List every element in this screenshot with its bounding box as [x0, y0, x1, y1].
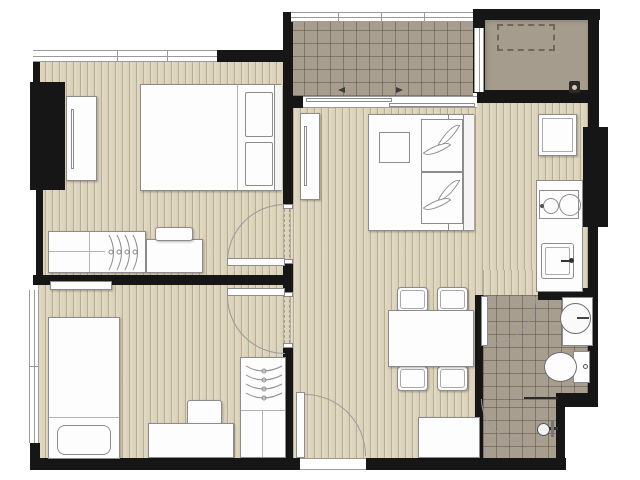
entrance-door-leaf [296, 392, 305, 458]
wall-step-vertical [556, 400, 565, 468]
balcony-floor [291, 20, 473, 96]
tray [155, 227, 193, 241]
dining-chair [397, 287, 428, 312]
double-bed-with-leaf-pillows [368, 114, 474, 231]
wardrobe [66, 96, 97, 181]
pillow [245, 142, 273, 186]
kitchen-sink [541, 243, 574, 279]
floor-drain-icon [569, 81, 580, 93]
dining-table [388, 310, 474, 367]
wardrobe-with-hangers [240, 357, 286, 458]
burner-small [543, 198, 559, 214]
bedroom-bottom-door-leaf [227, 288, 285, 296]
hangers-icon [244, 363, 284, 403]
wall-left-column [30, 82, 65, 190]
pillow [57, 425, 111, 455]
bedroom-left-window [29, 290, 39, 443]
dining-chair [437, 287, 468, 312]
shower-partition [524, 397, 558, 399]
hangers-icon [104, 234, 144, 271]
balcony-sliding-door [303, 96, 477, 108]
chair [187, 400, 222, 425]
pillow-leaf-top [421, 119, 463, 172]
headboard [274, 85, 282, 190]
ac-ledge-door [474, 28, 484, 92]
refrigerator [538, 114, 577, 156]
two-burner-stove [539, 190, 579, 219]
wall-ac-top [473, 9, 600, 20]
wall-sliding-stub [291, 96, 303, 108]
duvet-fold [379, 132, 410, 163]
slide-arrow-right [396, 87, 403, 93]
wall-bottom-west [30, 458, 300, 470]
bathroom-approach-floor [483, 270, 540, 295]
wall-shelf [50, 281, 112, 290]
bedroom-top-window [33, 50, 217, 62]
flush-button [583, 364, 588, 369]
wall-top-bedroom [217, 50, 283, 62]
double-bed [140, 84, 281, 191]
sliding-panel-right [389, 103, 475, 107]
slide-arrow-left [338, 87, 345, 93]
wall-right-column [583, 127, 608, 227]
entrance-threshold [300, 458, 366, 470]
wall-left-stub [33, 60, 40, 84]
basin-faucet-icon [577, 317, 589, 319]
condenser-dashed-outline [497, 24, 555, 51]
wall-left-mid [36, 188, 43, 278]
bathroom-door-leaf [481, 296, 488, 346]
pillow [245, 92, 273, 137]
toilet-bowl [544, 352, 577, 382]
single-bed [48, 317, 120, 459]
wall-bottom-east [366, 458, 566, 470]
shower-valve-icon [551, 420, 554, 437]
bedroom-top-door-leaf [227, 258, 285, 266]
wall-balcony-left [283, 12, 293, 208]
low-dresser-with-hangers [48, 231, 146, 273]
entry-cabinet [418, 417, 480, 458]
floor-plan [0, 0, 640, 480]
side-cabinet [300, 113, 320, 200]
pillow-leaf-bottom [421, 172, 463, 224]
dining-chair [437, 366, 468, 391]
side-table [146, 239, 203, 273]
dining-chair [397, 366, 428, 391]
sliding-panel-left [306, 98, 392, 102]
balcony-railing [291, 12, 473, 22]
burner-large [559, 194, 581, 216]
desk [148, 423, 234, 458]
headboard [463, 115, 474, 230]
